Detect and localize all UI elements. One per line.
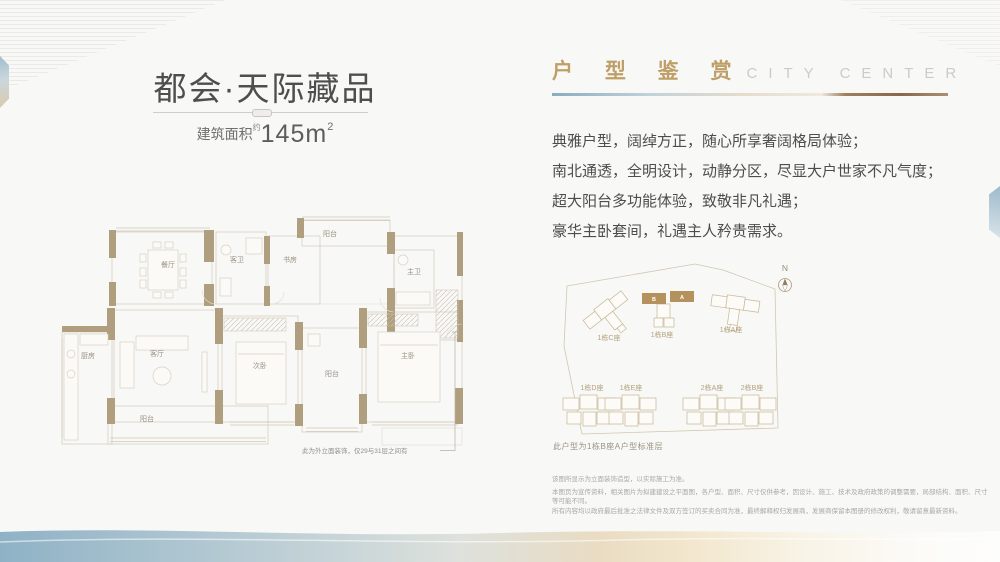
siteplan-caption: 此户型为1栋B座A户型标准层 (553, 441, 663, 452)
disclaimer-line-1: 该图所显示为立面装饰造型，以实际施工为准。 (552, 475, 992, 485)
building-label-2a: 2栋A座 (701, 383, 724, 392)
showcase-line-3: 超大阳台多功能体验，致敬非凡礼遇； (552, 187, 982, 217)
room-label-master-bath: 主卫 (407, 267, 421, 276)
building-label-1e: 1栋E座 (620, 383, 643, 392)
showcase-line-4: 豪华主卧套间，礼遇主人矜贵需求。 (552, 217, 982, 247)
showcase-gradient-bar (552, 93, 948, 96)
title-divider (153, 111, 368, 114)
room-label-balcony-top: 阳台 (323, 229, 337, 238)
floor-plan: 餐厅 客卫 书房 阳台 主卫 厨房 客厅 次卧 阳台 主卧 阳台 此为外立面装饰… (50, 192, 470, 460)
room-label-kitchen: 厨房 (81, 351, 95, 360)
north-label: N (782, 263, 788, 273)
showcase-title-en: CITY CENTER (747, 65, 968, 82)
area-superscript: 2 (327, 121, 333, 133)
divider-lens-ornament (252, 109, 272, 117)
room-label-balcony-mid: 阳台 (325, 369, 339, 378)
page: 都会·天际藏品 建筑面积约145m2 (0, 0, 1000, 562)
room-label-guest-bath: 客卫 (230, 255, 244, 264)
building-clusters (563, 289, 776, 426)
area-value: 145m (261, 120, 328, 148)
showcase-line-1: 典雅户型，阔绰方正，随心所享奢阔格局体验； (552, 127, 982, 157)
highlighted-units: B A (642, 291, 694, 304)
room-label-master-bedroom: 主卧 (401, 351, 415, 360)
room-label-balcony-bottom: 阳台 (140, 414, 154, 423)
showcase-paragraph: 典雅户型，阔绰方正，随心所享奢阔格局体验； 南北通透，全明设计，动静分区，尽显大… (552, 127, 982, 247)
disclaimer: 该图所显示为立面装饰造型，以实际施工为准。 本图页为宣传资料，相关图片为拟建建设… (552, 475, 992, 516)
building-label-2b: 2栋B座 (741, 383, 764, 392)
unit-b-label: B (652, 297, 656, 303)
room-label-second-bedroom: 次卧 (253, 361, 267, 370)
building-label-1c: 1栋C座 (598, 333, 621, 342)
unit-a-label: A (680, 295, 684, 301)
site-plan: B A 1栋C座 1栋B座 1栋A座 1栋D座 1栋E座 2栋A座 2栋B座 N (545, 256, 800, 446)
room-label-living: 客厅 (150, 349, 164, 358)
area-approx-mark: 约 (253, 123, 261, 132)
building-area: 建筑面积约145m2 (140, 120, 390, 149)
title-block: 都会·天际藏品 (140, 62, 390, 110)
disclaimer-line-2: 本图页为宣传资料，相关图片为拟建建设之平面图，各户型、面积、尺寸仅供参考，因设计… (552, 488, 992, 507)
showcase-line-2: 南北通透，全明设计，动静分区，尽显大户世家不凡气度； (552, 157, 982, 187)
disclaimer-line-3: 所有内容均以政府最后批准之法律文件及双方签订的买卖合同为准，最终解释权归发展商，… (552, 507, 992, 517)
showcase-header: 户 型 鉴 赏CITY CENTER (552, 55, 952, 85)
building-label-1a: 1栋A座 (720, 325, 743, 334)
showcase-title-cn: 户 型 鉴 赏 (552, 60, 745, 83)
building-label-1d: 1栋D座 (581, 383, 604, 392)
room-label-dining: 餐厅 (161, 260, 175, 269)
furniture (64, 238, 462, 440)
bottom-wave-overlay (0, 528, 1000, 562)
page-title: 都会·天际藏品 (140, 62, 390, 110)
right-edge-accent (989, 186, 1000, 238)
building-label-1b: 1栋B座 (651, 330, 674, 339)
room-label-study: 书房 (283, 255, 297, 264)
area-label: 建筑面积 (197, 126, 253, 142)
north-compass-icon: N (779, 263, 792, 292)
note-leader-line (440, 332, 458, 451)
facade-note: 此为外立面装饰，仅29与31层之间有 (302, 446, 408, 455)
